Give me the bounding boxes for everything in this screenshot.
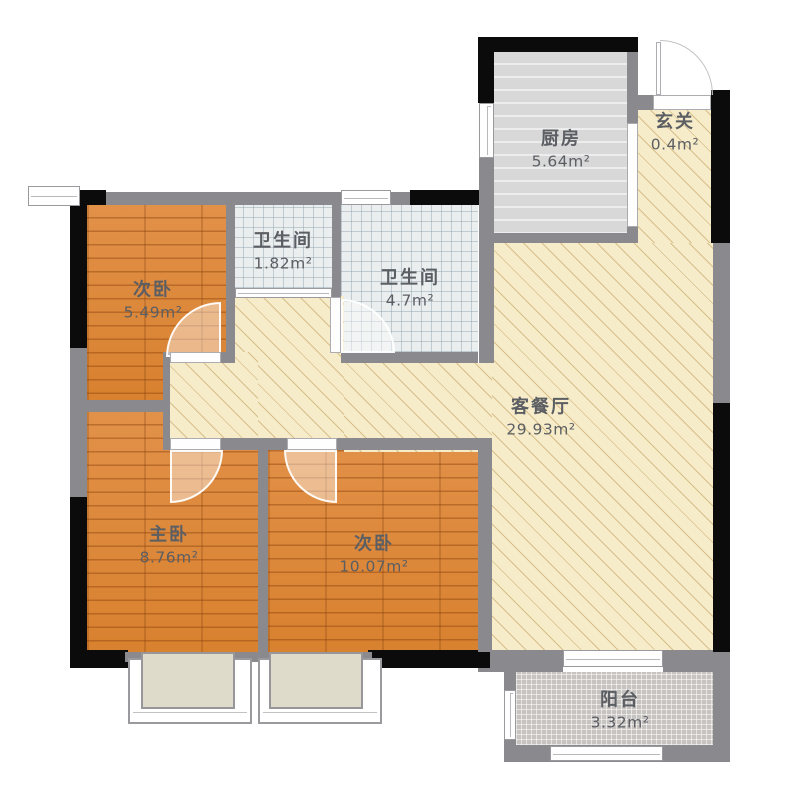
wall-segment xyxy=(341,352,478,363)
wall-segment xyxy=(410,190,480,205)
room-name: 阳台 xyxy=(600,688,640,713)
wall-segment xyxy=(226,205,235,354)
wall-segment xyxy=(627,52,638,123)
wall-segment xyxy=(478,37,494,103)
room-name: 次卧 xyxy=(354,532,394,557)
wall-segment xyxy=(78,192,341,205)
room-name: 次卧 xyxy=(133,278,173,303)
wall-segment xyxy=(663,650,713,672)
wall-segment xyxy=(258,438,268,668)
room-label-master-bedroom: 主卧 8.76m² xyxy=(140,523,199,570)
wall-segment xyxy=(713,243,730,403)
window xyxy=(28,186,80,206)
window xyxy=(550,746,663,761)
entry-door-leaf xyxy=(656,42,661,95)
room-area: 3.32m² xyxy=(591,713,650,735)
room-area: 5.49m² xyxy=(124,303,183,325)
wall-segment xyxy=(70,497,87,668)
window xyxy=(504,690,516,740)
kitchen-opening xyxy=(627,123,638,227)
wall-segment xyxy=(478,37,638,52)
room-name: 主卧 xyxy=(149,523,189,548)
room-label-living-dining: 客餐厅 29.93m² xyxy=(506,395,575,442)
room-label-kitchen: 厨房 5.64m² xyxy=(532,127,591,174)
room-label-bathroom-small: 卫生间 1.82m² xyxy=(253,229,313,276)
room-name: 卫生间 xyxy=(253,229,313,254)
door-leaf xyxy=(287,438,337,450)
wall-segment xyxy=(221,352,235,363)
room-name: 卫生间 xyxy=(380,266,440,291)
room-name: 厨房 xyxy=(541,127,581,152)
room-label-bedroom-top: 次卧 5.49m² xyxy=(124,278,183,325)
room-name: 客餐厅 xyxy=(511,395,571,420)
wall-segment xyxy=(479,158,494,363)
bathroom-sliding-door xyxy=(235,288,332,298)
hallway-floor-c xyxy=(163,352,258,450)
room-label-entry: 玄关 0.4m² xyxy=(651,110,699,157)
room-area: 1.82m² xyxy=(254,254,313,276)
balcony-sliding-door xyxy=(563,650,663,667)
wall-segment xyxy=(70,348,87,497)
wall-segment xyxy=(368,650,490,668)
wall-segment xyxy=(221,438,258,450)
floor-plan: 次卧 5.49m² 卫生间 1.82m² 卫生间 4.7m² 厨房 5.64m²… xyxy=(0,0,800,800)
wall-segment xyxy=(713,403,730,652)
wall-segment xyxy=(337,438,478,450)
room-area: 5.64m² xyxy=(532,152,591,174)
wall-segment xyxy=(478,650,563,672)
wall-segment xyxy=(711,90,730,243)
door-leaf xyxy=(330,297,341,353)
bay-window-sill xyxy=(269,652,363,709)
room-label-bathroom-large: 卫生间 4.7m² xyxy=(380,266,440,313)
room-area: 29.93m² xyxy=(506,420,575,442)
window xyxy=(479,103,494,158)
room-area: 4.7m² xyxy=(386,291,434,313)
wall-segment xyxy=(70,650,128,668)
wall-segment xyxy=(494,233,638,243)
wall-segment xyxy=(332,205,341,298)
entry-door-swing-arc xyxy=(660,40,713,95)
entry-door-threshold xyxy=(653,95,711,110)
room-area: 0.4m² xyxy=(651,135,699,157)
wall-segment xyxy=(478,438,492,652)
room-name: 玄关 xyxy=(655,110,695,135)
wall-segment xyxy=(391,192,410,205)
room-area: 10.07m² xyxy=(339,557,408,579)
living-room-floor xyxy=(492,243,713,652)
bay-window-sill xyxy=(141,652,235,709)
door-leaf xyxy=(170,352,221,363)
room-area: 8.76m² xyxy=(140,548,199,570)
wall-segment xyxy=(268,438,287,450)
wall-segment xyxy=(70,190,87,348)
wall-segment xyxy=(87,400,170,412)
window xyxy=(341,190,391,205)
room-label-bedroom-2: 次卧 10.07m² xyxy=(339,532,408,579)
room-label-balcony: 阳台 3.32m² xyxy=(591,688,650,735)
door-leaf xyxy=(170,438,221,450)
